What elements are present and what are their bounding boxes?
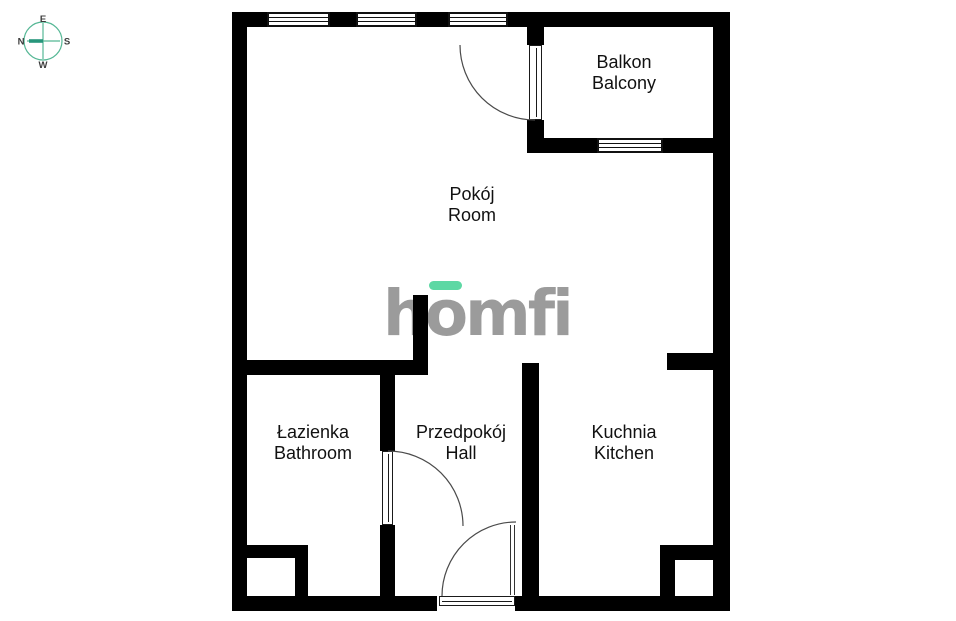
wall-bottom-segment-2 [515, 596, 730, 611]
balcony-label: Balkon Balcony [539, 52, 709, 94]
room-label-en: Room [392, 205, 552, 226]
room-south-wall-stub [413, 295, 428, 375]
window-top-1 [267, 12, 330, 27]
room-label: Pokój Room [392, 184, 552, 226]
wall-bottom-segment-1 [232, 596, 437, 611]
hall-kitchen-wall [522, 363, 539, 611]
balcony-label-pl: Balkon [539, 52, 709, 73]
wall-right [713, 12, 730, 611]
wall-left [232, 12, 247, 611]
compass-label-east: E [40, 14, 46, 25]
floor-plan: E N S W homfi Balkon B [0, 0, 956, 621]
hall-label: Przedpokój Hall [396, 422, 526, 464]
balcony-wall-upper-block [527, 15, 544, 45]
entry-door-threshold [439, 596, 515, 606]
balcony-parapet-segment-1 [527, 138, 597, 153]
hall-label-pl: Przedpokój [396, 422, 526, 443]
balcony-window [597, 138, 663, 153]
compass-label-north: N [18, 37, 25, 48]
compass-label-south: S [64, 37, 70, 48]
wall-top-segment-2 [330, 12, 356, 27]
window-top-2 [356, 12, 417, 27]
balcony-parapet-segment-2 [663, 138, 713, 153]
bathroom-shaft-wall-right [295, 545, 308, 598]
balcony-door-arc [460, 45, 535, 120]
logo-accent-bar-icon [429, 281, 462, 290]
kitchen-shaft-wall-left [660, 545, 675, 598]
kitchen-label-pl: Kuchnia [544, 422, 704, 443]
kitchen-north-wall-stub [667, 353, 713, 370]
bathroom-label: Łazienka Bathroom [233, 422, 393, 464]
hall-label-en: Hall [396, 443, 526, 464]
room-label-pl: Pokój [392, 184, 552, 205]
bathroom-label-en: Bathroom [233, 443, 393, 464]
window-top-3 [448, 12, 508, 27]
kitchen-label-en: Kitchen [544, 443, 704, 464]
entry-door-leaf [510, 525, 515, 595]
room-south-wall [240, 360, 428, 375]
bathroom-label-pl: Łazienka [233, 422, 393, 443]
kitchen-label: Kuchnia Kitchen [544, 422, 704, 464]
compass-label-west: W [39, 60, 48, 71]
wall-top-segment-3 [417, 12, 448, 27]
balcony-label-en: Balcony [539, 73, 709, 94]
bathroom-hall-wall-lower [380, 525, 395, 611]
compass-rose-icon: E N S W [12, 8, 78, 74]
entry-door-arc [442, 522, 516, 596]
